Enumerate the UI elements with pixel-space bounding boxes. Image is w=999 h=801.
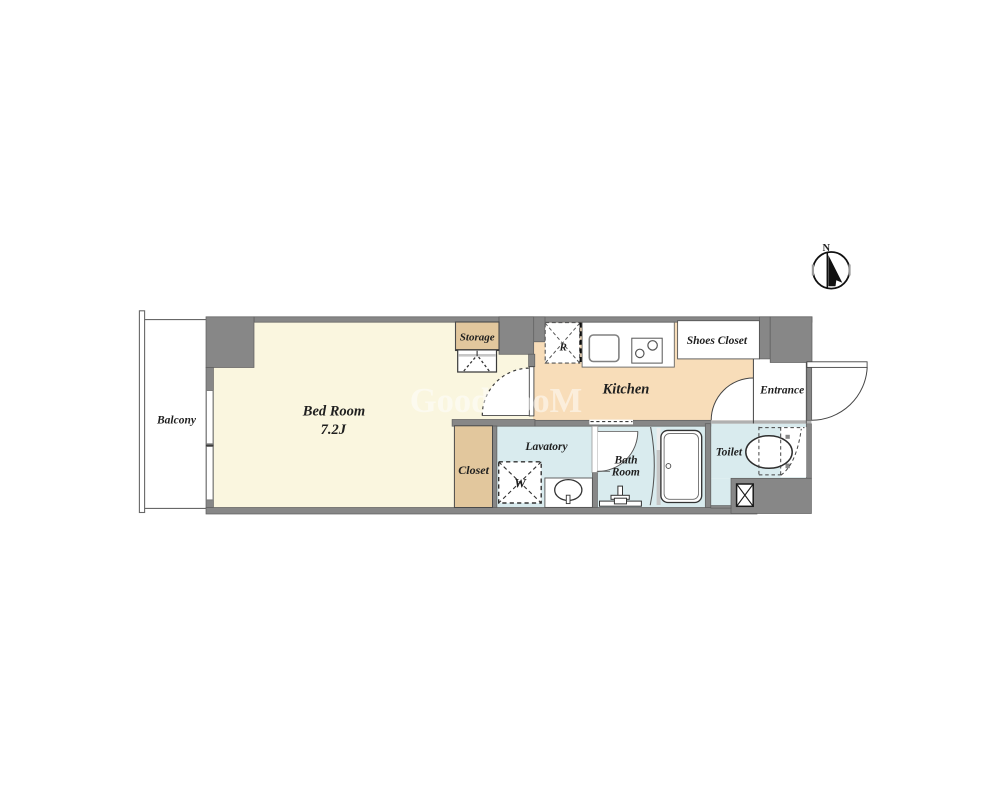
- svg-text:Kitchen: Kitchen: [602, 382, 650, 398]
- svg-text:GoodRooM: GoodRooM: [410, 382, 583, 420]
- svg-text:Toilet: Toilet: [716, 447, 743, 459]
- svg-text:Bed Room: Bed Room: [302, 404, 365, 420]
- svg-text:Bath: Bath: [613, 455, 637, 467]
- svg-text:Room: Room: [611, 467, 640, 479]
- svg-text:Balcony: Balcony: [156, 415, 197, 427]
- svg-text:Storage: Storage: [460, 332, 495, 344]
- svg-text:R: R: [559, 342, 567, 354]
- svg-text:7.2J: 7.2J: [321, 422, 347, 438]
- svg-text:Lavatory: Lavatory: [524, 441, 568, 453]
- svg-text:N: N: [823, 243, 831, 254]
- svg-text:W: W: [514, 476, 527, 491]
- svg-text:Closet: Closet: [458, 463, 489, 477]
- svg-text:Shoes Closet: Shoes Closet: [687, 335, 748, 347]
- svg-text:Entrance: Entrance: [759, 385, 804, 397]
